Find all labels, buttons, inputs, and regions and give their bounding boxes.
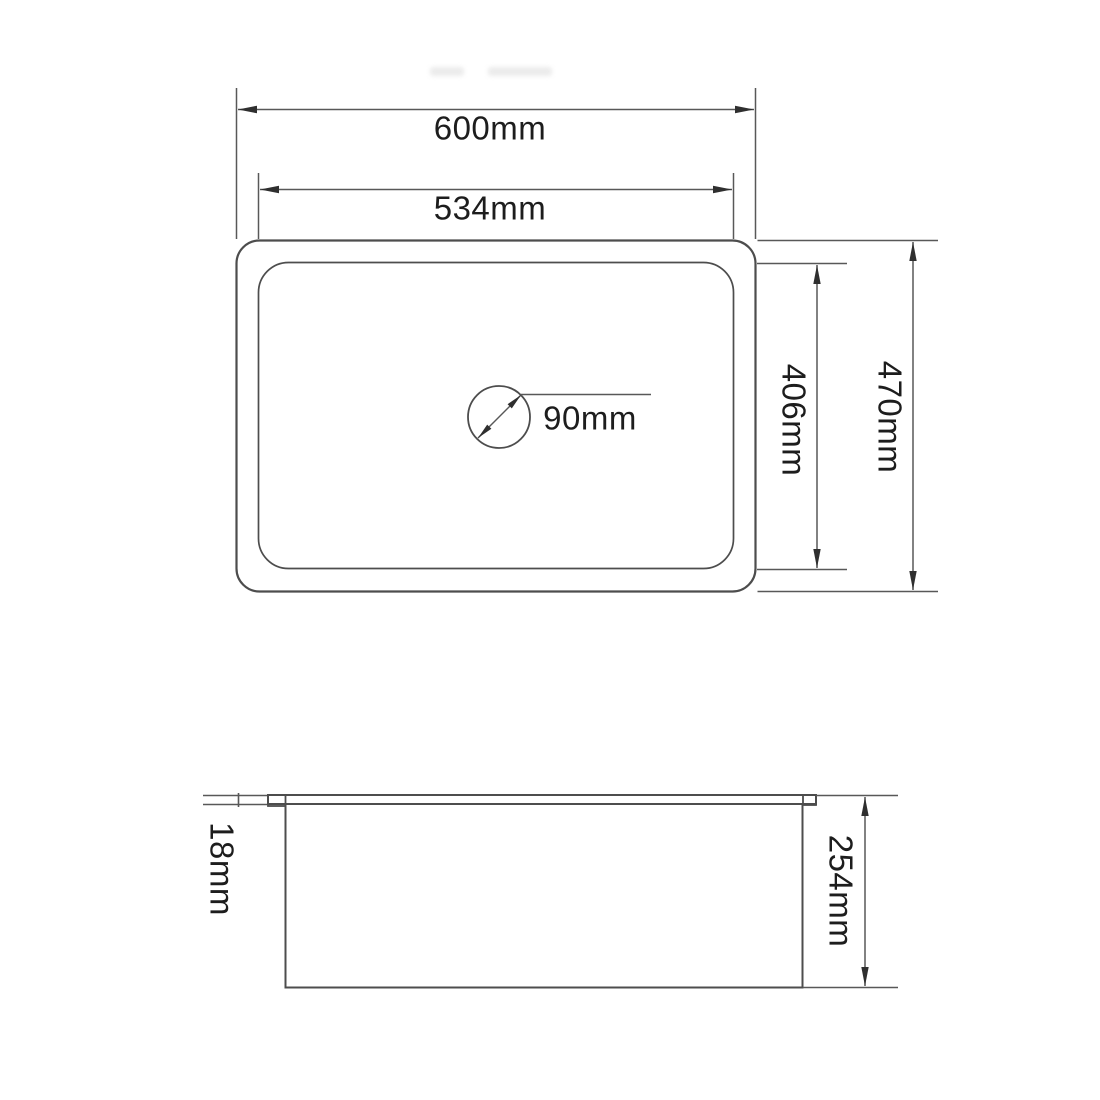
outer-sink-rect: [237, 241, 756, 592]
arrowhead: [909, 571, 916, 590]
dim-label-drain-diameter: 90mm: [543, 402, 637, 435]
arrowhead: [813, 549, 820, 568]
bowl-body-outline: [286, 804, 803, 988]
dim-label-inner-height: 406mm: [778, 364, 811, 477]
arrowhead: [735, 106, 754, 114]
arrowhead: [861, 797, 868, 816]
rim-flange-rect: [268, 795, 816, 804]
drawing-linework: [0, 0, 1100, 1100]
arrowhead: [238, 106, 257, 114]
arrowhead: [813, 265, 820, 284]
side-view-profile: [203, 793, 898, 988]
dim-label-rim-thickness: 18mm: [206, 822, 239, 916]
arrowhead: [713, 186, 732, 194]
top-view-plan: [237, 88, 939, 592]
inner-bowl-rect: [259, 263, 734, 569]
dim-label-outer-width: 600mm: [434, 112, 547, 145]
arrowhead: [909, 242, 916, 261]
sink-dimension-drawing: 600mm 534mm 90mm 406mm 470mm 18mm 254mm: [0, 0, 1100, 1100]
dim-label-outer-height: 470mm: [874, 361, 907, 474]
dim-label-bowl-depth: 254mm: [825, 835, 858, 948]
arrowhead: [861, 967, 868, 986]
arrowhead: [260, 186, 279, 194]
dim-label-inner-width: 534mm: [434, 192, 547, 225]
